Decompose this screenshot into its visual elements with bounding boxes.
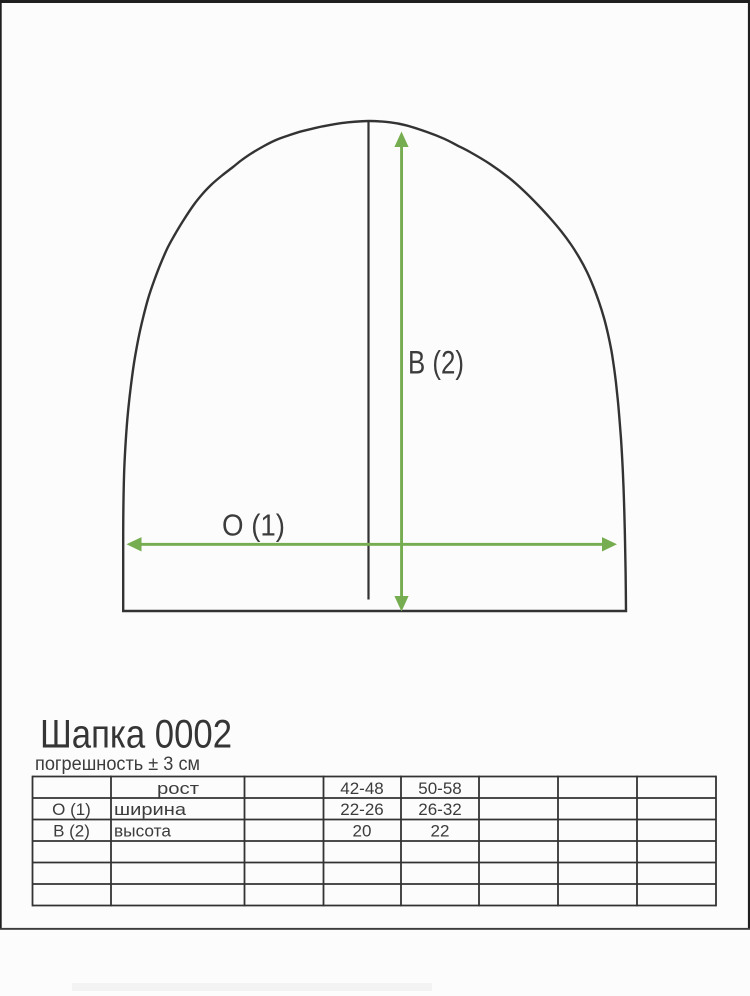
svg-text:О (1): О (1) xyxy=(222,508,285,543)
svg-text:20: 20 xyxy=(353,822,372,841)
svg-text:22: 22 xyxy=(431,822,450,841)
svg-text:О (1): О (1) xyxy=(52,800,91,819)
svg-text:42-48: 42-48 xyxy=(340,779,383,798)
svg-text:высота: высота xyxy=(114,822,172,841)
svg-text:26-32: 26-32 xyxy=(418,800,461,819)
svg-text:В (2): В (2) xyxy=(408,345,464,381)
svg-text:Шапка 0002: Шапка 0002 xyxy=(40,713,232,757)
svg-text:50-58: 50-58 xyxy=(418,779,461,798)
svg-text:погрешность ± 3 см: погрешность ± 3 см xyxy=(35,754,200,775)
svg-text:рост: рост xyxy=(157,779,199,798)
svg-text:ширина: ширина xyxy=(114,800,187,819)
svg-text:В (2): В (2) xyxy=(53,822,90,841)
svg-text:22-26: 22-26 xyxy=(340,800,383,819)
